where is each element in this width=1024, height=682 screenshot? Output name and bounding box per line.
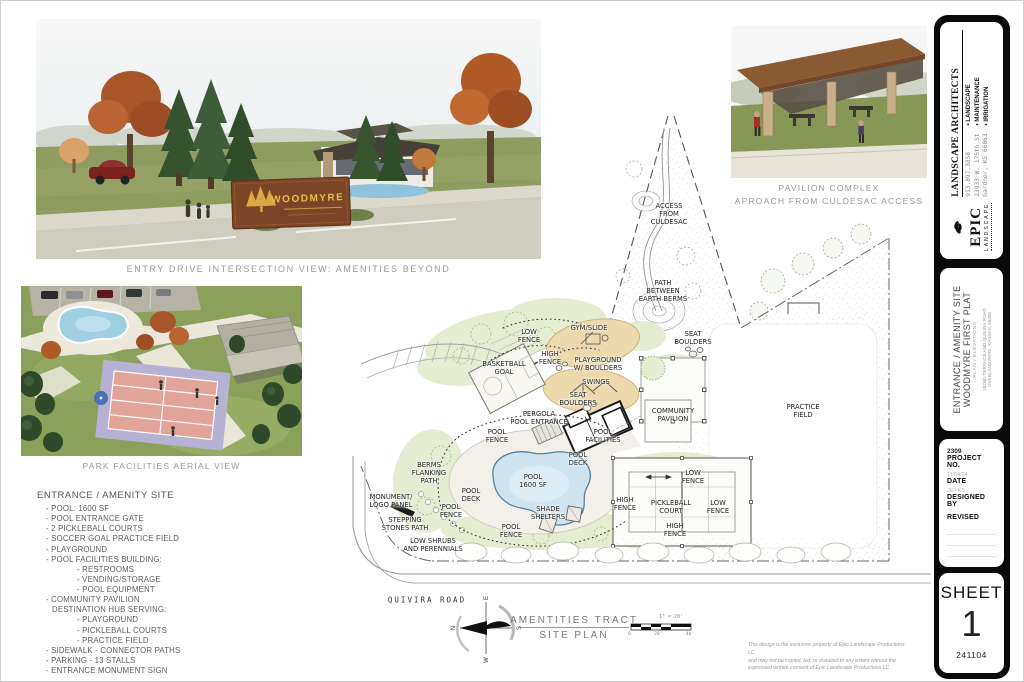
plan-label: POOL FENCE	[486, 428, 508, 444]
amenity-list-item: - POOL FACILITIES BUILDING:	[46, 555, 267, 565]
sheet-code: 241104	[939, 650, 1004, 660]
firm-service-1: • MAINTENANCE	[974, 77, 983, 125]
title-block: EPIC LANDSCAPE LANDSCAPE ARCHITECTS 913.…	[934, 15, 1010, 679]
aerial-render	[21, 286, 302, 456]
plan-label: POOL DECK	[569, 451, 588, 467]
amenity-list-item: - PRACTICE FIELD	[77, 636, 267, 646]
scale-tick-0: 0	[628, 632, 631, 637]
amenity-list-item: - ENTRANCE MONUMENT SIGN	[46, 666, 267, 676]
site-plan-drawing: N S E W	[341, 106, 936, 676]
scale-note: 1" = 20'	[659, 614, 683, 620]
plan-label: PLAYGROUND W/ BOULDERS	[574, 356, 622, 372]
plan-title-rule	[519, 627, 629, 628]
scale-ticks: 0 20' 40'	[628, 632, 694, 637]
plan-label: SWINGS	[582, 378, 610, 386]
monument-sign: WOODMYRE	[231, 177, 351, 229]
sheet-number: 1	[939, 603, 1004, 644]
amenity-list-item: - PLAYGROUND	[46, 545, 267, 555]
plan-label: SHADE SHELTERS	[531, 505, 565, 521]
plan-title-line1: AMENTITIES TRACT	[510, 615, 638, 626]
amenity-list-item: - POOL EQUIPMENT	[77, 585, 267, 595]
plan-label: POOL FACILITIES	[585, 428, 620, 444]
info-panel: 2309 PROJECT NO. 11/04/24 DATE JE / KS D…	[939, 439, 1004, 567]
aerial-render-image	[21, 286, 302, 456]
firm-service-0: • LANDSCAPE	[965, 77, 974, 125]
plan-title-line2: SITE PLAN	[539, 630, 608, 641]
firm-panel-content: EPIC LANDSCAPE LANDSCAPE ARCHITECTS 913.…	[940, 22, 1003, 259]
plan-label: PICKLEBALL COURT	[651, 499, 691, 515]
pickleball-court-aerial	[95, 360, 230, 451]
disclaimer-line3: expressed written consent of Epic Landsc…	[748, 665, 908, 673]
plan-label: MONUMENT/ LOGO PANEL	[369, 493, 412, 509]
scale-bar	[631, 624, 691, 630]
amenity-list-item: - VENDING/STORAGE	[77, 575, 267, 585]
amenity-list-item: - POOL: 1600 SF	[46, 504, 267, 514]
amenity-list-item: - SOCCER GOAL PRACTICE FIELD	[46, 534, 267, 544]
compass-rose: N S E W	[451, 596, 523, 663]
culdesac-corridor	[601, 116, 741, 354]
plan-label: PERGOLA POOL ENTRANCE	[510, 410, 568, 426]
leaf-icon	[952, 219, 964, 235]
firm-phone: 913.897.3858	[965, 133, 974, 196]
plan-label: POOL DECK	[462, 487, 481, 503]
plan-label: HIGH FENCE	[614, 496, 636, 512]
plan-label: SEAT BOULDERS	[559, 391, 596, 407]
plan-label: BASKETBALL GOAL	[482, 360, 525, 376]
plan-label: STEPPING STONES PATH	[382, 516, 429, 532]
amenity-list-item: - SIDEWALK - CONNECTOR PATHS	[46, 646, 267, 656]
firm-services: • LANDSCAPE • MAINTENANCE • IRRIGATION	[965, 77, 992, 125]
revised-label: REVISED	[947, 514, 996, 521]
scale-tick-2: 40'	[686, 632, 694, 637]
amenity-list: ENTRANCE / AMENITY SITE - POOL: 1600 SF-…	[37, 490, 267, 676]
plan-label: HIGH FENCE	[664, 522, 686, 538]
amenity-list-item: DESTINATION HUB SERVING:	[52, 605, 267, 615]
project-title-line2: WOODMYRE FIRST PLAT	[962, 292, 972, 407]
plan-label: SEAT BOULDERS	[674, 330, 711, 346]
plan-label: LOW FENCE	[518, 328, 540, 344]
firm-address: 913.897.3858 23933 W. 175th St Gardner, …	[965, 133, 991, 196]
scale-tick-1: 20'	[654, 632, 662, 637]
amenity-list-item: - 2 PICKLEBALL COURTS	[46, 524, 267, 534]
compass-e: E	[484, 596, 490, 600]
revision-line	[947, 535, 996, 546]
disclaimer-line1: This design is the exclusive property of…	[748, 642, 908, 658]
epic-logo-sub: LANDSCAPE	[984, 203, 992, 251]
date-label: DATE	[947, 478, 996, 485]
plan-label: POOL FENCE	[440, 503, 462, 519]
revision-line	[947, 524, 996, 535]
disclaimer: This design is the exclusive property of…	[748, 642, 908, 673]
plan-label: ACCESS FROM CULDESAC	[651, 202, 688, 226]
drawing-sheet: WOODMYRE ENTRY DRIVE INTERSECTION VIEW: …	[0, 0, 1024, 682]
firm-panel: EPIC LANDSCAPE LANDSCAPE ARCHITECTS 913.…	[940, 22, 1003, 259]
firm-address-line1: 23933 W. 175th St	[974, 133, 983, 196]
plan-label: BERMS FLANKING PATH	[412, 461, 446, 485]
amenity-list-item: - RESTROOMS	[77, 565, 267, 575]
project-panel-content: ENTRANCE / AMENITY SITE WOODMYRE FIRST P…	[940, 268, 1003, 431]
project-no-value: 2309	[947, 448, 996, 455]
plan-label: LOW SHRUBS AND PERENNIALS	[403, 537, 462, 553]
plan-label: COMMUNITY PAVILION	[652, 407, 694, 423]
amenity-list-item: - PARKING - 13 STALLS	[46, 656, 267, 666]
project-address-line2: OVERLAND PARK, KANSAS, 66085	[987, 312, 992, 387]
designed-by-label: DESIGNED BY	[947, 494, 996, 508]
sheet-panel: SHEET 1 241104	[939, 573, 1004, 673]
amenity-list-title: ENTRANCE / AMENITY SITE	[37, 490, 267, 501]
revision-line	[947, 546, 996, 557]
firm-service-2: • IRRIGATION	[983, 77, 992, 125]
compass-n: N	[451, 626, 457, 630]
aerial-caption: PARK FACILITIES AERIAL VIEW	[21, 461, 302, 471]
firm-address-line2: Gardner, KS 66063	[982, 133, 991, 196]
plan-label: LOW FENCE	[707, 499, 729, 515]
project-panel: ENTRANCE / AMENITY SITE WOODMYRE FIRST P…	[940, 268, 1003, 431]
project-title-line1: ENTRANCE / AMENITY SITE	[952, 285, 962, 413]
amenity-list-item: - POOL ENTRANCE GATE	[46, 514, 267, 524]
road-label: QUIVIRA ROAD	[388, 596, 466, 605]
project-no-label: PROJECT NO.	[947, 455, 996, 469]
sheet-label: SHEET	[939, 583, 1004, 603]
plan-label: GYM/SLIDE	[571, 324, 608, 332]
amenity-list-item: - PICKLEBALL COURTS	[77, 626, 267, 636]
plan-label: HIGH FENCE	[539, 350, 561, 366]
plan-label: PRACTICE FIELD	[786, 403, 819, 419]
amenity-list-items: - POOL: 1600 SF- POOL ENTRANCE GATE- 2 P…	[37, 504, 267, 676]
disclaimer-line2: and may not be copied, bid, or installed…	[748, 658, 908, 666]
amenity-list-item: - COMMUNITY PAVILION	[46, 595, 267, 605]
site-plan: N S E W ACCESS FROM CULDESACPATH BETWEEN…	[341, 106, 936, 676]
plan-label: POOL 1600 SF	[519, 473, 547, 489]
compass-w: W	[484, 657, 490, 663]
amenity-list-item: - PLAYGROUND	[77, 615, 267, 625]
firm-name: LANDSCAPE ARCHITECTS	[951, 30, 963, 197]
plan-label: LOW FENCE	[682, 469, 704, 485]
plan-label: PATH BETWEEN EARTH BERMS	[639, 279, 687, 303]
epic-logo: EPIC LANDSCAPE	[951, 203, 992, 251]
plan-label: POOL FENCE	[500, 523, 522, 539]
project-subtitle: PLAN / ELEVATIONS	[973, 321, 978, 377]
epic-logo-name: EPIC	[969, 203, 984, 251]
